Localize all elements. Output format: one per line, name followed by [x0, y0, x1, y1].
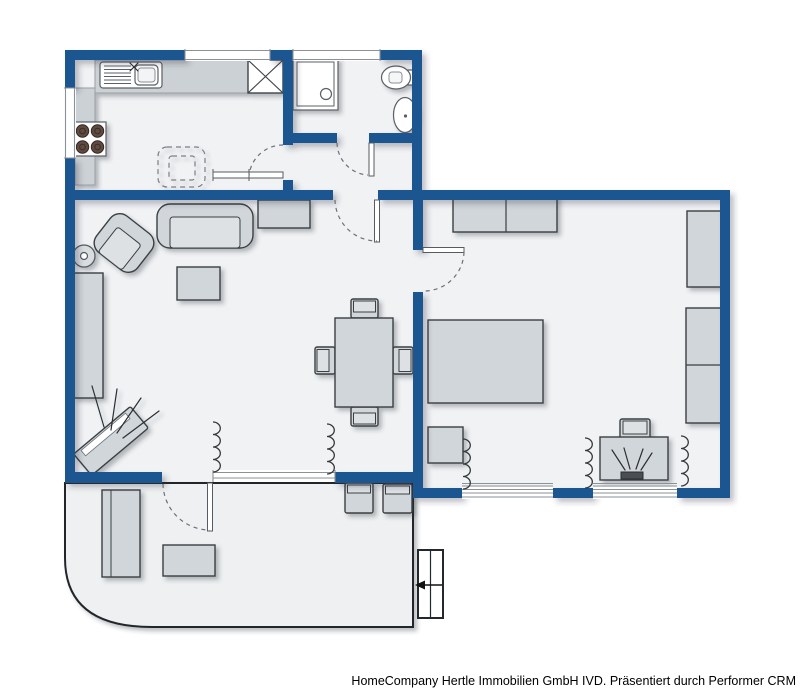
wall — [720, 190, 730, 498]
wall — [65, 190, 333, 200]
desk-chair — [620, 419, 650, 439]
window — [64, 88, 76, 158]
cabinet — [687, 211, 722, 287]
wall — [413, 488, 462, 498]
wall — [378, 190, 730, 200]
wall — [65, 472, 162, 483]
bed — [428, 320, 543, 403]
toilet — [382, 66, 414, 89]
credit-text: HomeCompany Hertle Immobilien GmbH IVD. … — [351, 674, 796, 688]
cabinet — [686, 308, 722, 423]
sideboard-top — [258, 200, 310, 228]
floor-lamp — [73, 245, 95, 267]
wall — [335, 472, 413, 483]
balcony-chair — [345, 483, 373, 513]
desk — [600, 437, 668, 480]
desk-lamp-base — [621, 472, 643, 479]
wall — [293, 133, 337, 143]
sofa — [157, 204, 253, 248]
wall — [283, 60, 293, 145]
dining-table — [335, 318, 393, 407]
stove — [74, 122, 106, 156]
sideboard-left — [74, 273, 103, 398]
nightstand — [428, 427, 463, 463]
window — [462, 484, 553, 500]
dining-chair-seat — [399, 350, 411, 372]
kitchen-sink — [100, 62, 162, 88]
entrance-steps — [415, 550, 443, 618]
window — [593, 484, 677, 500]
floor-plan-svg — [0, 0, 800, 691]
balcony-chair — [383, 484, 412, 513]
wall — [65, 158, 75, 483]
wall — [65, 50, 185, 60]
lounger — [102, 490, 140, 577]
balcony-table — [163, 545, 215, 576]
dining-chair-seat — [354, 413, 376, 424]
window — [185, 49, 270, 61]
wall — [413, 190, 423, 250]
shower — [293, 58, 338, 110]
wall — [65, 50, 75, 88]
window — [213, 470, 335, 482]
window — [293, 49, 380, 61]
wall — [677, 488, 730, 498]
dining-chair-seat — [317, 350, 329, 372]
wardrobe — [453, 196, 557, 232]
dining-chair-seat — [354, 301, 376, 312]
coffee-table — [177, 267, 220, 300]
wall — [412, 50, 422, 198]
wall — [413, 292, 423, 498]
wall — [270, 50, 293, 60]
ventilation-shaft — [248, 60, 283, 93]
floor-plan-page: HomeCompany Hertle Immobilien GmbH IVD. … — [0, 0, 800, 691]
wall — [553, 488, 593, 498]
